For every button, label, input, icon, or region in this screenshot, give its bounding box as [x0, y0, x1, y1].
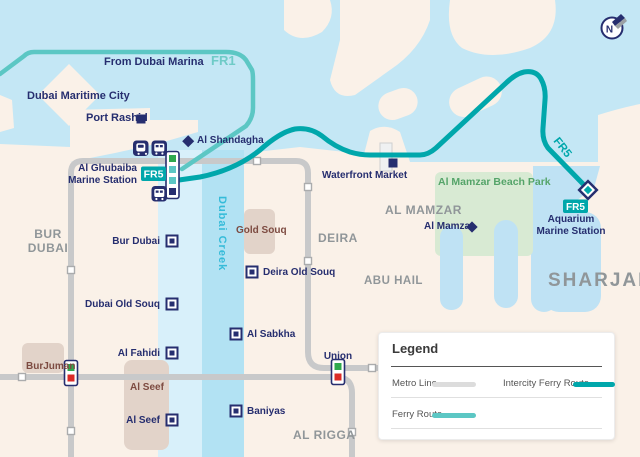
divider — [391, 366, 602, 367]
label-station-deira-old-souq: Deira Old Souq — [263, 267, 335, 279]
label-al-ghubaiba: Al Ghubaiba Marine Station — [67, 163, 137, 186]
label-waterfront-market: Waterfront Market — [322, 170, 407, 182]
label-fr1: FR1 — [211, 54, 236, 69]
label-abu-hail-area: ABU HAIL — [364, 275, 423, 288]
svg-text:FR5: FR5 — [566, 202, 585, 213]
label-al-mamzar-beach-park: Al Mamzar Beach Park — [438, 176, 551, 188]
label-al-mamzar-area: AL MAMZAR — [385, 204, 462, 218]
svg-text:N: N — [606, 25, 613, 36]
label-al-mamzar: Al Mamzar — [424, 221, 474, 233]
label-aquarium: Aquarium Marine Station — [536, 214, 606, 237]
label-sharjah: SHARJAH — [548, 270, 640, 292]
fr5-badge-aquarium: FR5 — [563, 200, 588, 214]
marker-al-sabkha — [230, 328, 243, 341]
marker-baniyas — [230, 405, 243, 418]
label-deira-area: DEIRA — [318, 232, 358, 246]
transit-map: FR5 Dubai Creek — [0, 0, 640, 457]
divider — [391, 428, 602, 429]
ferry-route-swatch — [432, 413, 476, 418]
label-station-bur-dubai: Bur Dubai — [104, 236, 160, 248]
marker-waterfront-market[interactable] — [389, 159, 398, 168]
metro-line-swatch — [432, 382, 476, 387]
intercity-ferry-swatch — [573, 382, 615, 387]
label-al-seef-area: Al Seef — [130, 382, 164, 394]
divider — [391, 397, 602, 398]
label-port-rashid: Port Rashid — [86, 112, 148, 125]
label-station-al-sabkha: Al Sabkha — [247, 329, 295, 341]
label-al-rigga-area: AL RIGGA — [293, 429, 355, 443]
label-station-baniyas: Baniyas — [247, 406, 285, 418]
label-from-dubai-marina: From Dubai Marina — [104, 56, 204, 69]
fr5-badge-ghubaiba: FR5 — [141, 167, 166, 182]
legend-item-metro-line: Metro Line — [392, 378, 437, 389]
label-gold-souq: Gold Souq — [236, 225, 287, 237]
label-al-shandagha: Al Shandagha — [197, 135, 264, 147]
label-station-dubai-old-souq: Dubai Old Souq — [80, 299, 160, 311]
marker-al-seef — [166, 414, 179, 427]
interchange-union[interactable] — [332, 360, 345, 385]
label-station-al-seef: Al Seef — [100, 415, 160, 427]
marker-dubai-old-souq — [166, 298, 179, 311]
label-bur-dubai-area: BUR DUBAI — [24, 228, 72, 256]
marker-al-fahidi — [166, 347, 179, 360]
marker-deira-old-souq — [246, 266, 259, 279]
train-icon — [133, 141, 149, 157]
svg-text:FR5: FR5 — [144, 169, 164, 181]
label-station-al-fahidi: Al Fahidi — [100, 348, 160, 360]
legend-panel: Legend Metro Line Intercity Ferry Route … — [378, 332, 615, 440]
label-burjuman: BurJuman — [26, 361, 75, 373]
bus-icon — [152, 186, 168, 202]
label-dubai-maritime-city: Dubai Maritime City — [27, 90, 130, 103]
legend-title: Legend — [392, 341, 438, 356]
interchange-al-ghubaiba[interactable] — [166, 152, 179, 199]
label-station-union: Union — [322, 351, 354, 363]
marker-bur-dubai — [166, 235, 179, 248]
dubai-creek-label: Dubai Creek — [216, 196, 228, 271]
bus-icon — [152, 141, 168, 157]
